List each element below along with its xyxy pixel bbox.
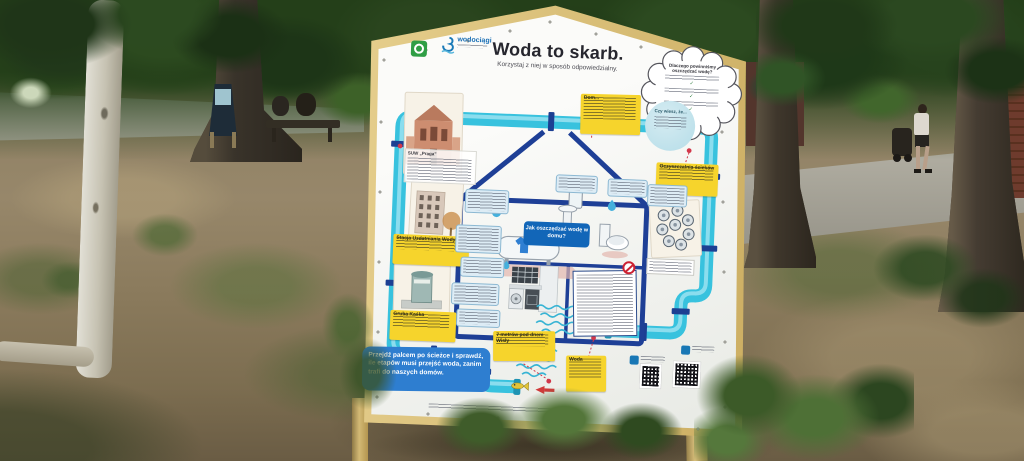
label-wisla: 7 metrów pod dnem Wisły: [493, 331, 555, 361]
stroller-wheel: [904, 154, 912, 162]
pedestrian-shoe: [914, 169, 921, 173]
pedestrian-leg: [922, 146, 929, 170]
bench-leg: [272, 128, 276, 142]
pedestrian-leg: [916, 146, 920, 170]
park-bench: [266, 108, 340, 146]
qr-caption: [641, 356, 665, 363]
label-dom: Dom...: [580, 94, 641, 135]
tip-bubble: [464, 189, 509, 215]
note-tanks-text: [649, 261, 691, 273]
bench-leg: [328, 128, 332, 142]
do-not-flush-panel: [573, 270, 638, 337]
treatment-tanks-illustration: [649, 200, 702, 258]
overhanging-leaves: [0, 0, 290, 108]
pedestrian-shoe: [925, 169, 932, 173]
tip-bubble: [607, 178, 648, 198]
overhanging-leaves: [860, 220, 1024, 340]
seated-person: [296, 93, 316, 116]
label-stacja-text: [396, 237, 462, 252]
prohibition-slash: [624, 263, 634, 273]
tip-bubble: [647, 184, 688, 208]
label-oczyszczalnia-text: [659, 165, 714, 181]
do-not-flush-text: [577, 274, 634, 333]
label-woda-text: [569, 359, 601, 379]
sandwich-board-leg: [210, 132, 214, 148]
foreground-weeds: [426, 386, 702, 461]
did-you-know-lines: [654, 116, 686, 129]
tip-bubble: [456, 308, 501, 328]
note-suw-praga: SUW „Praga”: [404, 148, 477, 185]
swan-icon: [441, 36, 456, 56]
qr-code: [640, 364, 662, 389]
note-tanks: [646, 258, 695, 276]
label-wisla-text: [496, 334, 548, 346]
tip-bubble: [455, 224, 502, 254]
foreground-weeds: [694, 352, 914, 461]
tip-bubble: [460, 257, 505, 279]
note-suw-text: [407, 157, 472, 182]
waterworks-badge-icon: [681, 345, 690, 354]
cloud-title: Dlaczego powinniśmy oszczędzać wodę?: [657, 62, 727, 75]
tip-bubble: [555, 174, 598, 194]
water-drop-icon: [608, 200, 616, 212]
foreground-weeds: [308, 290, 408, 410]
stroller-wheel: [893, 154, 901, 162]
city-logo: [411, 40, 428, 57]
sandwich-board-leg: [232, 132, 236, 148]
facebook-icon: [630, 355, 639, 364]
weed-patch: [110, 200, 220, 270]
house-badge: Jak oszczędzać wodę w domu?: [523, 221, 590, 248]
park-photo-scene: wodociągi Woda to skarb. Korzystaj z nie…: [0, 0, 1024, 461]
overhanging-leaves: [756, 0, 1024, 138]
tip-bubble: [451, 282, 500, 306]
label-dom-text: [583, 97, 635, 120]
city-logo-mark: [414, 43, 424, 53]
bench-seat: [266, 120, 340, 128]
did-you-know-title: Czy wiesz, że...: [646, 109, 696, 116]
